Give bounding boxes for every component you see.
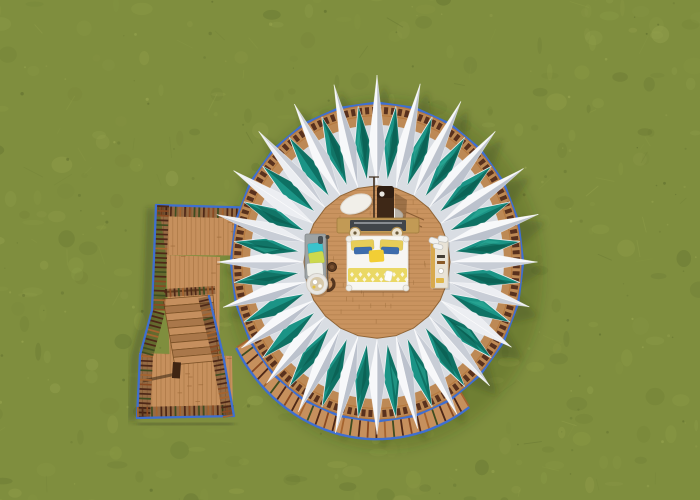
- aerial-render: [0, 0, 700, 500]
- scene-svg: [0, 0, 700, 500]
